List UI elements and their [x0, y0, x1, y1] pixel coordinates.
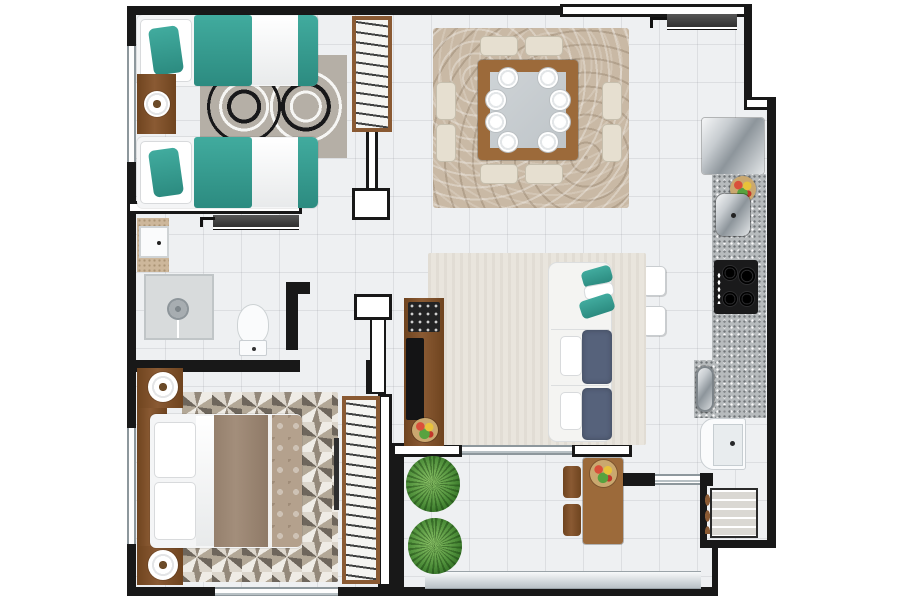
- window-master-south: [215, 587, 338, 596]
- window-bedroom1-west: [127, 46, 136, 162]
- wall-right: [767, 97, 776, 548]
- bedroom1-lamp: [144, 91, 170, 117]
- service-shelf-knobs: [704, 492, 711, 534]
- wall-bathroom-east-stub: [286, 282, 310, 294]
- wall-top-left: [127, 6, 565, 15]
- cooktop-knobs: [717, 272, 721, 304]
- master-bedroom-door: [370, 318, 386, 394]
- master-pillow-2: [154, 482, 196, 540]
- balcony-sliding-glass-door: [462, 445, 572, 455]
- master-wardrobe: [342, 396, 380, 584]
- canister-knob: [731, 213, 736, 218]
- sofa-white-pillow-1: [560, 336, 582, 376]
- master-wardrobe-rod: [334, 438, 339, 510]
- dining-plate-1: [498, 68, 518, 88]
- wall-balcony-divider-b: [572, 443, 632, 457]
- balcony-chair-2: [563, 504, 581, 536]
- dining-plate-4: [538, 132, 558, 152]
- entrance-door-arrow-icon: [650, 17, 667, 28]
- balcony-chair-1: [563, 466, 581, 498]
- tv-cabinet-flowers: [412, 418, 438, 442]
- bathroom-sliding-door: [213, 215, 299, 229]
- balcony-fruit-bowl: [590, 460, 617, 487]
- tv-screen: [406, 338, 424, 420]
- dining-chair-left-1: [436, 82, 456, 120]
- twin-bed-a-sheet: [252, 16, 298, 85]
- bathroom-door-arrow-icon: [200, 217, 215, 227]
- twin-bed-a-foot: [298, 15, 318, 86]
- wall-laundry-south-a: [620, 473, 655, 486]
- toilet-tank: [239, 340, 267, 356]
- master-sheet-band: [196, 416, 214, 546]
- dining-plate-3: [498, 132, 518, 152]
- twin-bed-a-accent-pillow: [148, 25, 184, 76]
- wall-laundry-south-b: [700, 473, 713, 486]
- refrigerator: [702, 118, 764, 174]
- shower-drain-line: [177, 320, 179, 338]
- kitchen-canister-appliance: [716, 194, 750, 236]
- toilet-flush-button: [252, 347, 256, 351]
- dining-chair-top-1: [480, 36, 518, 56]
- dining-table: [478, 60, 578, 160]
- master-bed: [150, 414, 302, 548]
- floor-plan-canvas: [0, 0, 900, 600]
- wall-entry-right: [744, 6, 752, 101]
- dining-chair-bottom-1: [480, 164, 518, 184]
- dining-plate-2: [538, 68, 558, 88]
- sofa-seam-2: [551, 385, 609, 386]
- twin-bed-a-blanket: [194, 15, 252, 86]
- burner-3: [723, 292, 737, 306]
- twin-bed-b-sheet: [252, 138, 298, 207]
- master-lamp-bottom: [148, 550, 178, 580]
- laundry-tub: [700, 418, 746, 470]
- plant-1: [406, 456, 460, 512]
- dining-plate-7: [550, 90, 570, 110]
- window-master-west: [127, 428, 136, 544]
- master-bed-runner: [272, 415, 302, 547]
- bathroom-basin: [139, 226, 169, 258]
- master-pillow-1: [154, 422, 196, 478]
- master-duvet: [214, 415, 268, 547]
- toilet-bowl: [237, 304, 269, 344]
- balcony-glass-railing: [425, 571, 701, 589]
- kitchen-sink: [696, 366, 714, 412]
- wall-master-east: [378, 394, 392, 587]
- wall-balcony-west: [392, 443, 404, 587]
- laundry-window: [655, 474, 705, 485]
- shower-pan: [144, 274, 214, 340]
- sofa-navy-cushion-1: [582, 330, 612, 384]
- burner-2: [739, 268, 755, 284]
- dining-plate-5: [486, 90, 506, 110]
- living-rug: [428, 253, 646, 445]
- twin-bed-b: [137, 137, 318, 208]
- cooktop: [714, 260, 758, 314]
- twin-bed-b-foot: [298, 137, 318, 208]
- wall-pillar-hall-north: [352, 188, 390, 220]
- dining-chair-top-2: [525, 36, 563, 56]
- dining-chair-left-2: [436, 124, 456, 162]
- media-equipment: [408, 302, 440, 332]
- wall-pillar-hall-south: [354, 294, 392, 320]
- master-lamp-top: [148, 372, 178, 402]
- laundry-tub-basin: [713, 424, 743, 466]
- entrance-sliding-door: [667, 14, 737, 29]
- basin-drain: [157, 241, 161, 245]
- burner-1: [723, 266, 737, 280]
- service-shelf-cabinet: [710, 488, 758, 538]
- dining-chair-right-1: [602, 82, 622, 120]
- shower-head: [167, 298, 189, 320]
- outside-bottom-right: [718, 548, 778, 600]
- sofa-white-pillow-2: [560, 392, 582, 430]
- wall-nook-left: [712, 548, 718, 596]
- plant-2: [408, 518, 462, 574]
- laundry-tub-drain: [730, 441, 735, 446]
- dining-chair-bottom-2: [525, 164, 563, 184]
- dining-plate-8: [550, 112, 570, 132]
- burner-4: [740, 292, 754, 306]
- sofa-navy-cushion-2: [582, 388, 612, 440]
- dining-chair-right-2: [602, 124, 622, 162]
- wall-nook-bottom: [700, 540, 776, 548]
- twin-bed-b-accent-pillow: [148, 147, 184, 198]
- twin-bed-b-blanket: [194, 137, 252, 208]
- bedroom1-wardrobe: [352, 16, 392, 132]
- dining-plate-6: [486, 112, 506, 132]
